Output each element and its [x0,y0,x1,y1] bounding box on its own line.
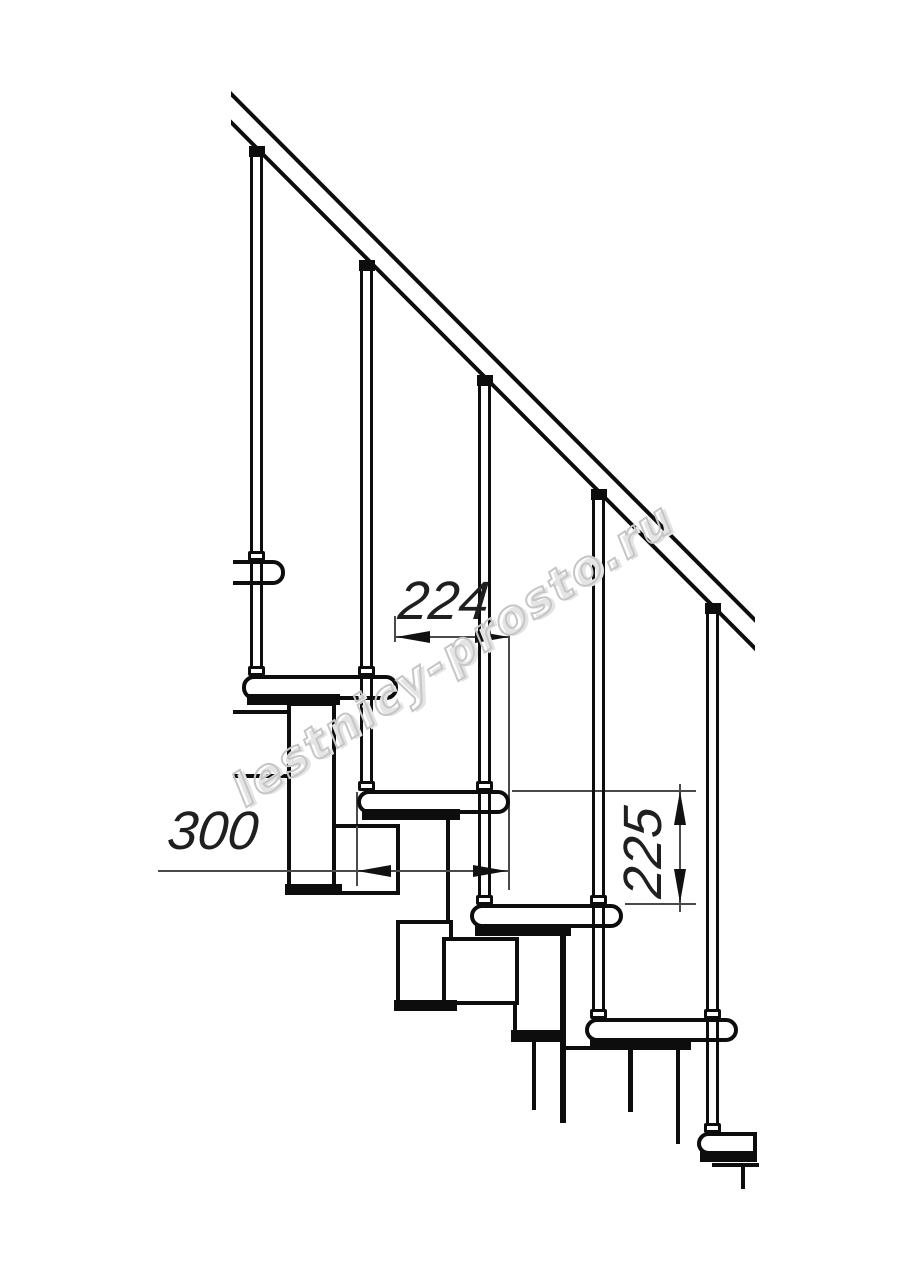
baluster-5 [706,612,719,1125]
spine-module-3-tab [440,1000,457,1011]
baluster-1-collar-lower [248,666,265,676]
spine-module-4-right-edge [628,1046,633,1112]
baluster-3-collar-lower [476,895,493,905]
dim-225-arrow-up [674,791,686,825]
spine-under-tread-5-drop [741,1163,745,1189]
tread-3-clamp [475,924,571,936]
spine-clamp-lower-3 [511,1030,560,1042]
tread-2-clamp [362,809,460,820]
spine-cut-line-1 [532,1042,536,1110]
dim-225-arrow-down [674,869,686,903]
baluster-1-collar-upper [248,551,265,561]
spine-module-under-tread-3 [442,937,519,1005]
spine-column-3-right-edge [560,933,566,1123]
dim-300-line [158,870,509,872]
spine-under-tread-5-step [712,1163,759,1167]
spine-riser-line-2 [446,815,450,922]
baluster-1 [250,155,263,668]
baluster-5-collar-lower [704,1123,721,1133]
spine-module-under-tread-2 [332,824,400,895]
tread-5-clamp [700,1151,757,1162]
spine-column-1-foot [285,884,342,895]
dim-300-arrow-right [473,865,507,877]
staircase-drawing: 224 300 225 lestnicy-prosto.ru [0,0,914,1280]
spine-module-3-right-drop [513,1005,517,1032]
baluster-4-collar-lower [590,1009,607,1019]
baluster-3-collar-upper [476,781,493,791]
tread-4-clamp [590,1038,691,1050]
dim-300-extension-left-over [356,826,358,886]
baluster-5-collar-upper [704,1009,721,1019]
baluster-2-collar-lower [358,781,375,791]
dim-300-arrow-left [357,865,391,877]
baluster-4-collar-upper [590,895,607,905]
dim-225-label: 225 [617,794,669,909]
spine-column-4-right-edge [676,1046,680,1144]
